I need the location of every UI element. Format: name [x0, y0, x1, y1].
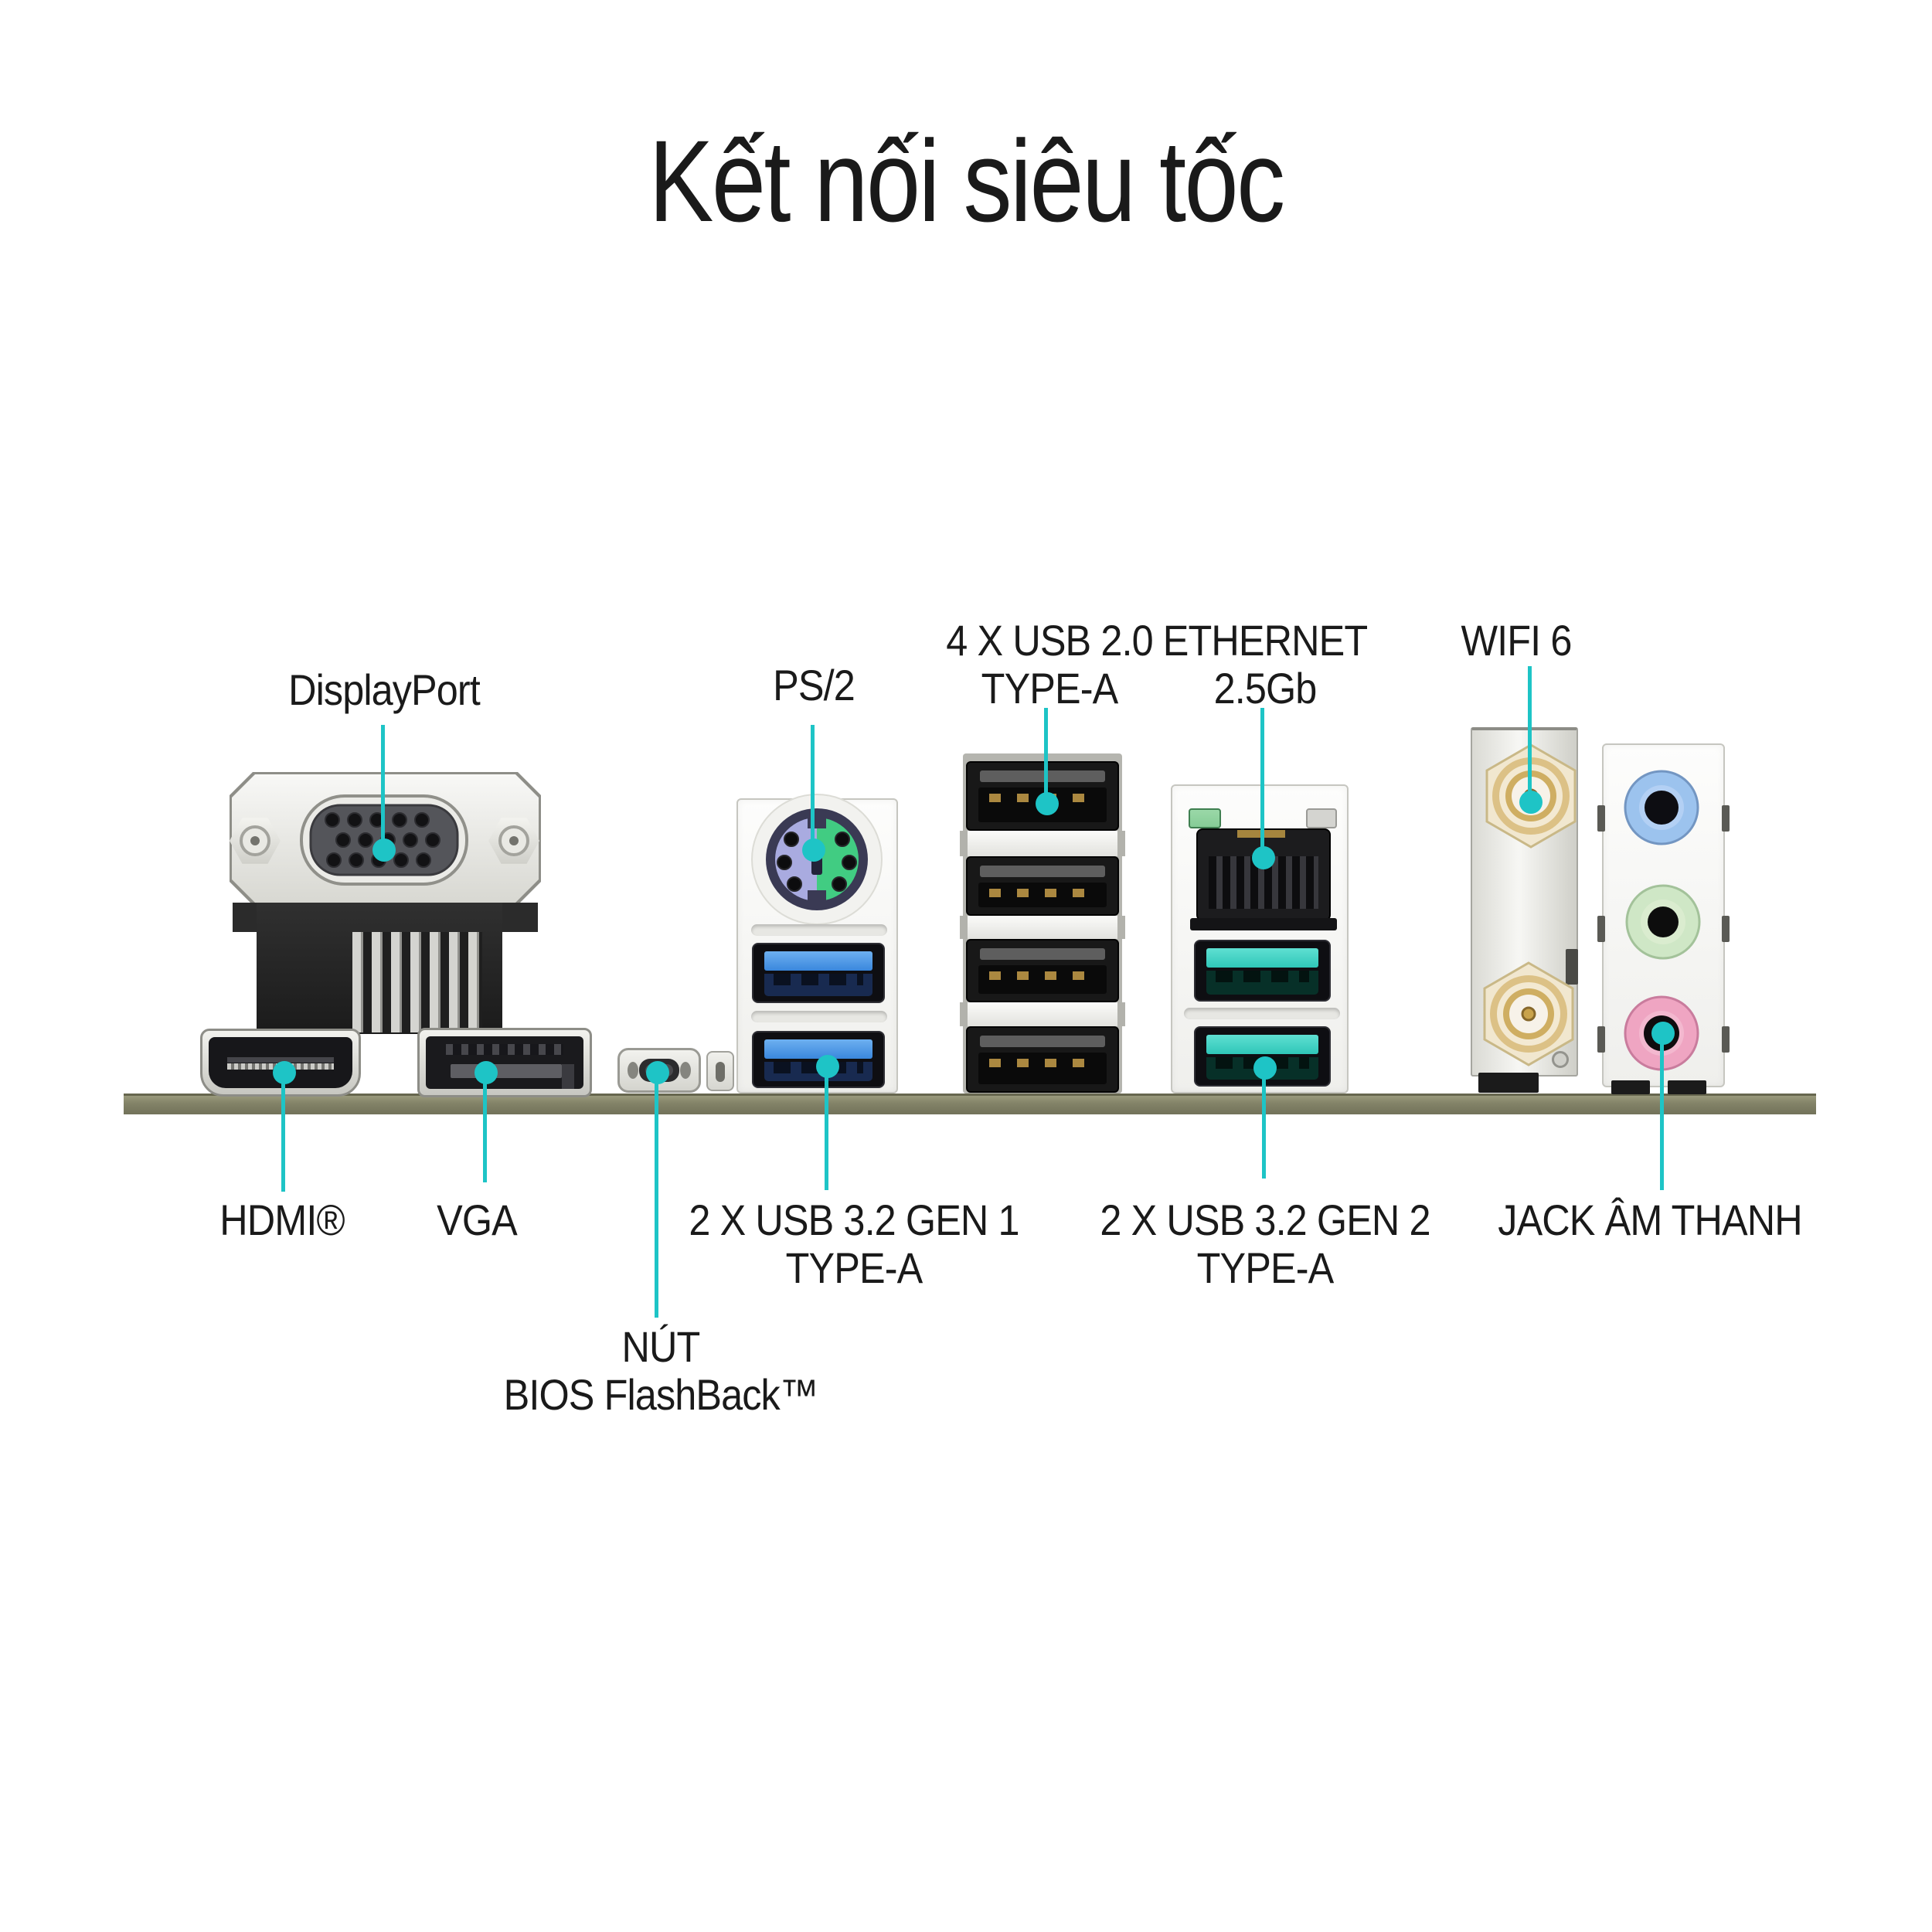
label-displayport: DisplayPort [288, 666, 480, 714]
callout-line-wifi [1528, 666, 1532, 802]
callout-dot-wifi [1519, 791, 1543, 814]
callout-dot-usb32-gen1 [816, 1055, 839, 1078]
displayport-port-opening [426, 1036, 583, 1089]
callout-dot-usb2 [1036, 792, 1059, 815]
callout-dot-usb32-gen2 [1253, 1056, 1277, 1080]
label-usb32-gen2: 2 X USB 3.2 GEN 2 TYPE-A [1100, 1196, 1430, 1292]
callout-line-ethernet [1260, 708, 1264, 858]
callout-line-usb2 [1044, 708, 1048, 804]
motherboard-pcb-edge [124, 1094, 1816, 1114]
label-audio: JACK ÂM THANH [1498, 1196, 1801, 1244]
callout-dot-hdmi [273, 1061, 296, 1084]
callout-line-usb32-gen2 [1262, 1068, 1266, 1179]
callout-dot-vga [474, 1061, 498, 1084]
callout-line-hdmi [281, 1073, 285, 1192]
label-ethernet: ETHERNET 2.5Gb [1163, 617, 1367, 713]
callout-dot-ps2 [802, 838, 825, 862]
label-usb32-gen1: 2 X USB 3.2 GEN 1 TYPE-A [689, 1196, 1019, 1292]
wifi-sma-connector-bottom [1476, 961, 1581, 1066]
displayport-port [417, 1028, 592, 1097]
usb3-gen1-port-1 [752, 943, 885, 1003]
label-bios-flashback: NÚT BIOS FlashBack™ [504, 1323, 818, 1419]
callout-dot-ethernet [1252, 846, 1275, 869]
callout-line-audio [1660, 1033, 1664, 1190]
usb3-gen2-port-1 [1194, 940, 1331, 1002]
panel-groove [1184, 1008, 1340, 1019]
label-vga: VGA [437, 1196, 517, 1244]
callout-line-vga [483, 1073, 487, 1182]
bracket-tab [706, 1051, 734, 1091]
usb2-port-4 [966, 1026, 1119, 1093]
callout-line-bios [655, 1073, 658, 1318]
ethernet-led-green [1189, 808, 1221, 828]
label-hdmi: HDMI® [219, 1196, 344, 1244]
callout-dot-displayport [372, 838, 396, 862]
diagram-canvas: Kết nối siêu tốc [0, 0, 1932, 1932]
label-wifi: WIFI 6 [1461, 617, 1571, 665]
label-ps2: PS/2 [773, 662, 855, 709]
page-title: Kết nối siêu tốc [648, 114, 1283, 248]
callout-dot-audio [1651, 1022, 1675, 1045]
panel-groove [751, 924, 887, 936]
audio-jack-line-in-blue [1623, 769, 1700, 846]
dsub-riser-pins [352, 932, 482, 1032]
label-usb2: 4 X USB 2.0 TYPE-A [946, 617, 1152, 713]
usb2-port-3 [966, 939, 1119, 1002]
callout-line-usb32-gen1 [825, 1066, 828, 1190]
audio-jack-line-out-green [1624, 883, 1702, 961]
panel-groove [751, 1011, 887, 1022]
callout-line-ps2 [811, 725, 815, 850]
callout-line-displayport [381, 725, 385, 850]
usb2-port-2 [966, 856, 1119, 916]
ethernet-led-gray [1306, 808, 1337, 828]
callout-dot-bios [646, 1061, 669, 1084]
